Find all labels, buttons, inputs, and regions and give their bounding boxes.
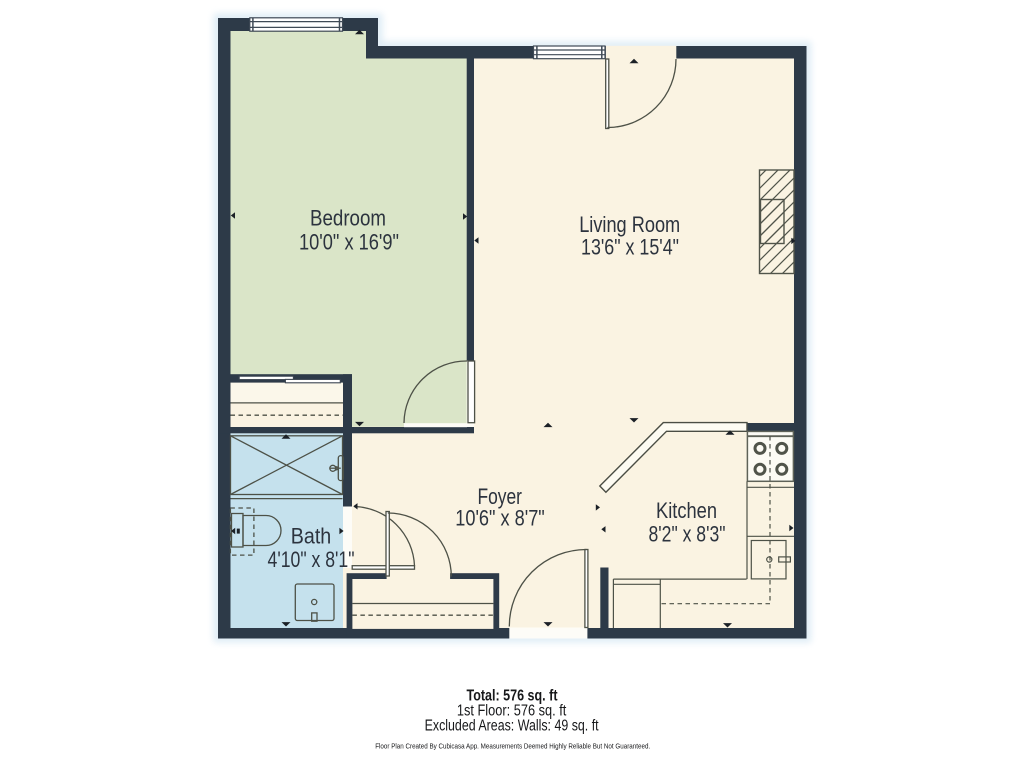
svg-text:4'10" x 8'1": 4'10" x 8'1" [268, 547, 355, 572]
svg-text:Excluded Areas: Walls: 49 sq.: Excluded Areas: Walls: 49 sq. ft [425, 718, 600, 735]
svg-text:Kitchen: Kitchen [656, 498, 717, 523]
svg-text:Bath: Bath [291, 524, 332, 549]
svg-text:Bedroom: Bedroom [310, 206, 386, 231]
svg-text:10'0" x 16'9": 10'0" x 16'9" [299, 229, 399, 254]
svg-text:Living Room: Living Room [579, 212, 680, 237]
svg-text:10'6" x 8'7": 10'6" x 8'7" [455, 506, 545, 531]
svg-text:13'6" x 15'4": 13'6" x 15'4" [581, 235, 679, 260]
svg-text:Floor Plan Created By Cubicasa: Floor Plan Created By Cubicasa App. Meas… [375, 741, 650, 750]
svg-text:8'2" x 8'3": 8'2" x 8'3" [649, 522, 726, 547]
